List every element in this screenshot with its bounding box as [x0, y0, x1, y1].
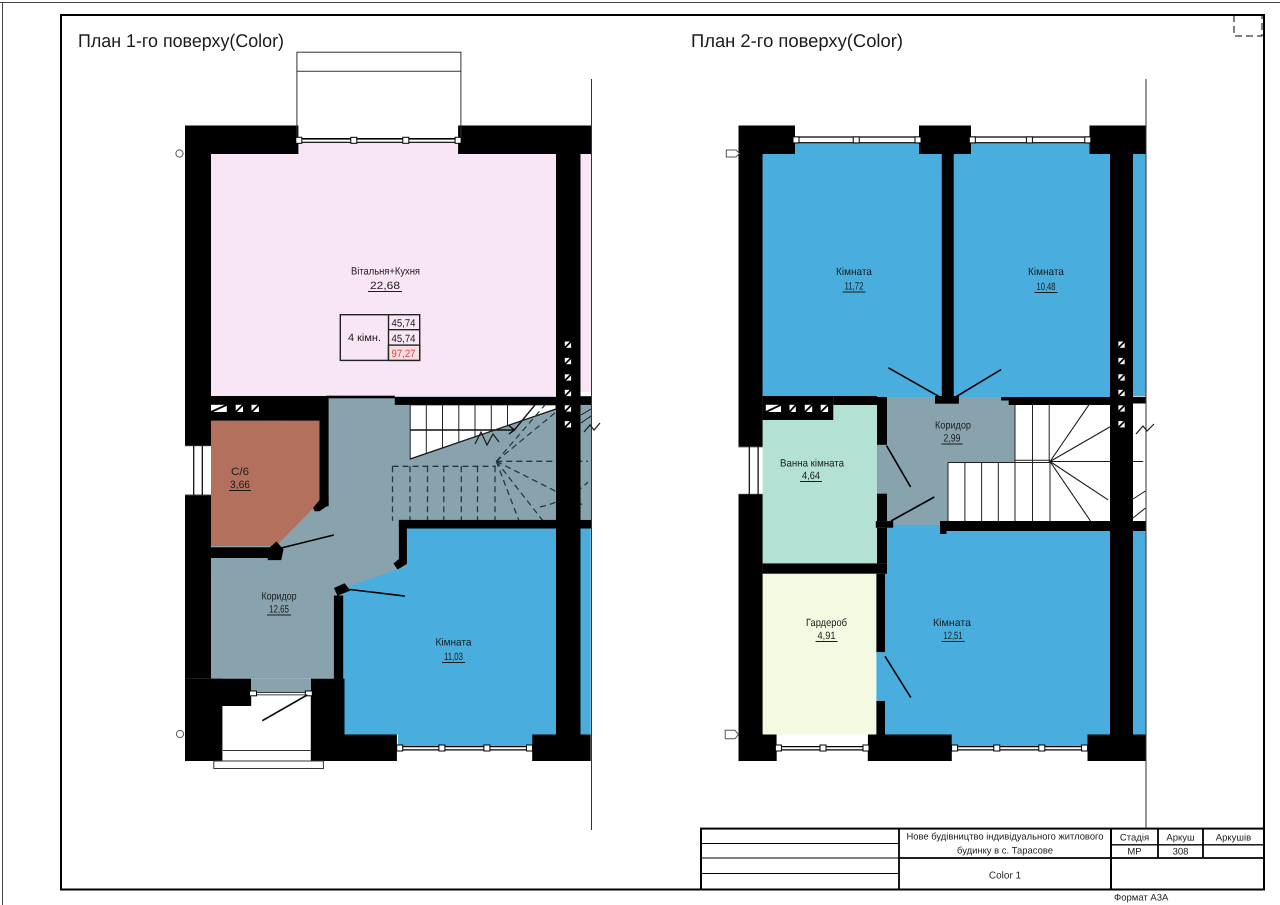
svg-text:Аркушів: Аркушів: [1216, 833, 1251, 844]
svg-text:45,74: 45,74: [392, 333, 416, 345]
svg-text:План 2-го поверху(Color): План 2-го поверху(Color): [691, 30, 903, 51]
svg-text:План 1-го поверху(Color): План 1-го поверху(Color): [78, 30, 284, 51]
svg-text:Кімната: Кімната: [1028, 266, 1064, 278]
svg-text:12,65: 12,65: [269, 604, 289, 616]
svg-text:3,66: 3,66: [230, 479, 250, 491]
svg-text:будинку в с. Тарасове: будинку в с. Тарасове: [957, 846, 1053, 857]
svg-text:Формат А3А: Формат А3А: [1114, 893, 1169, 904]
svg-text:Гардероб: Гардероб: [806, 617, 847, 629]
svg-text:Кімната: Кімната: [933, 617, 971, 629]
svg-text:22,68: 22,68: [370, 280, 400, 292]
svg-text:Ванна кімната: Ванна кімната: [780, 458, 844, 470]
svg-text:Color 1: Color 1: [989, 871, 1022, 882]
svg-text:4,91: 4,91: [818, 630, 836, 642]
svg-text:Кімната: Кімната: [836, 266, 872, 278]
svg-text:45,74: 45,74: [392, 318, 416, 330]
svg-text:11,03: 11,03: [444, 651, 463, 663]
svg-text:4 кімн.: 4 кімн.: [348, 332, 381, 344]
svg-text:С/6: С/6: [231, 466, 249, 478]
svg-text:4,64: 4,64: [802, 470, 820, 482]
svg-text:Кімната: Кімната: [436, 637, 472, 649]
svg-text:97,27: 97,27: [392, 348, 416, 360]
svg-text:Вітальня+Кухня: Вітальня+Кухня: [351, 266, 420, 278]
svg-text:Коридор: Коридор: [262, 591, 297, 603]
svg-text:12,51: 12,51: [944, 630, 963, 642]
svg-text:10,48: 10,48: [1037, 281, 1056, 293]
svg-text:МР: МР: [1127, 847, 1141, 858]
svg-text:Нове будівництво індивідуально: Нове будівництво індивідуального житлово…: [907, 832, 1104, 843]
svg-text:Аркуш: Аркуш: [1166, 833, 1194, 844]
svg-text:11,72: 11,72: [845, 281, 864, 293]
svg-text:Стадія: Стадія: [1120, 833, 1149, 844]
svg-text:Коридор: Коридор: [935, 420, 971, 432]
svg-text:2,99: 2,99: [944, 433, 961, 445]
svg-text:308: 308: [1173, 847, 1189, 858]
